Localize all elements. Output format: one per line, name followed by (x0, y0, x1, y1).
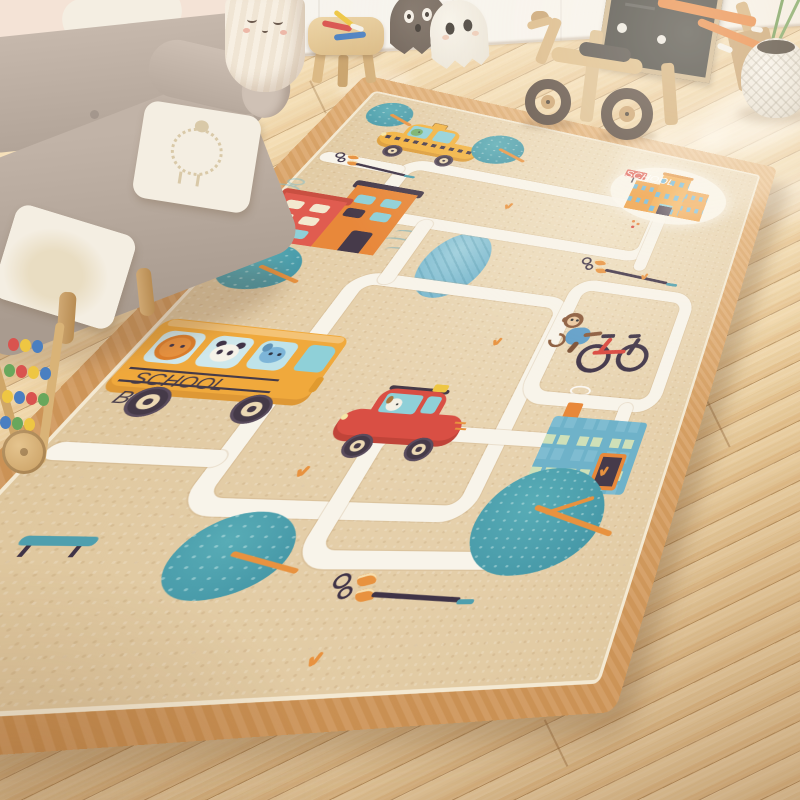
ghost-eye (422, 8, 432, 21)
abacus-beads (2, 390, 13, 403)
hub-dot (546, 100, 550, 104)
lamp-horn (347, 155, 360, 160)
pot-soil (757, 40, 795, 54)
tree-branch (545, 496, 594, 515)
ghost-eye (404, 10, 414, 23)
bench-leg (68, 546, 82, 557)
bike-rear-wheel (601, 88, 653, 140)
abacus-beads (4, 364, 15, 377)
abacus-toy (0, 322, 70, 477)
ghost-pupil (407, 14, 411, 19)
bunny-blush (280, 30, 287, 35)
bicycle-seat (601, 334, 615, 338)
lamp-pole-tip (456, 599, 475, 604)
abacus-beads (8, 338, 19, 351)
medallion-dot (20, 448, 29, 457)
lamp-curl (336, 157, 347, 163)
bench-leg (16, 546, 31, 557)
ghost-blush (442, 35, 449, 40)
hub (619, 106, 636, 123)
wooden-balance-bike (513, 3, 678, 143)
playroom-scene: SCHOOL (0, 0, 800, 800)
kids-stool (300, 5, 400, 87)
plant-pot (733, 0, 800, 140)
tree-branch (533, 504, 612, 536)
tree-branch (389, 114, 412, 127)
lamp-pole-tip (403, 175, 415, 179)
lamp-pole (355, 163, 406, 176)
sheep-doodle-body (167, 124, 226, 180)
hub (541, 95, 556, 110)
sheep-doodle-legs (178, 171, 183, 183)
hub-dot (625, 112, 630, 117)
bunny-blush (243, 28, 250, 33)
tree-branch (498, 148, 525, 163)
bunny-eye (247, 16, 257, 23)
bike-front-wheel (525, 79, 571, 125)
lamp-pole (371, 592, 461, 602)
pillow-sheep (131, 99, 263, 214)
ghost-mouth (415, 24, 421, 32)
lamp-horn (355, 571, 378, 589)
street-lamp (313, 571, 490, 619)
stool-leg (337, 55, 348, 87)
ghost-blush (472, 31, 479, 36)
monkey-arm (583, 331, 602, 337)
bunny-eye (273, 18, 283, 25)
monkey-head (561, 312, 587, 329)
ghost-pupil (425, 12, 429, 17)
bunny-mouth (262, 28, 268, 33)
ghost-eye-dark (463, 19, 473, 32)
ghost-eye-dark (445, 22, 455, 35)
abacus-beads (0, 416, 11, 429)
bicycle-rear-wheel (571, 342, 616, 374)
basket-body (225, 0, 305, 92)
abacus-medallion (2, 430, 46, 474)
sofa-button (90, 110, 99, 119)
